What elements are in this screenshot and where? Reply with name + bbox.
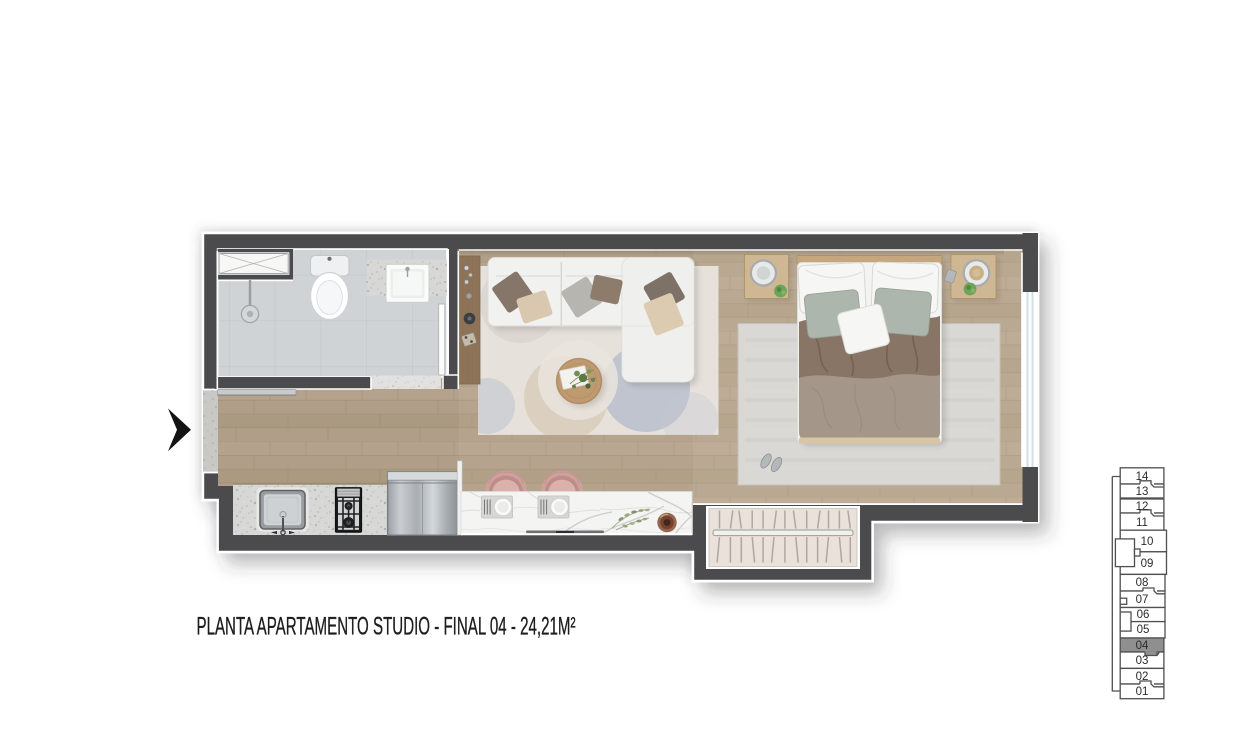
- svg-text:02: 02: [1136, 671, 1149, 683]
- svg-text:14: 14: [1136, 471, 1149, 483]
- svg-text:01: 01: [1136, 686, 1149, 698]
- svg-text:08: 08: [1136, 577, 1149, 589]
- svg-text:06: 06: [1137, 609, 1150, 621]
- svg-text:12: 12: [1136, 501, 1149, 513]
- svg-text:03: 03: [1136, 655, 1149, 667]
- svg-text:11: 11: [1136, 517, 1148, 529]
- svg-text:05: 05: [1137, 624, 1150, 636]
- svg-text:04: 04: [1136, 640, 1149, 652]
- svg-text:10: 10: [1141, 536, 1154, 548]
- svg-text:PLANTA APARTAMENTO STUDIO - FI: PLANTA APARTAMENTO STUDIO - FINAL 04 - 2…: [197, 613, 576, 641]
- svg-text:09: 09: [1141, 558, 1154, 570]
- svg-text:13: 13: [1136, 486, 1149, 498]
- svg-text:07: 07: [1136, 594, 1149, 606]
